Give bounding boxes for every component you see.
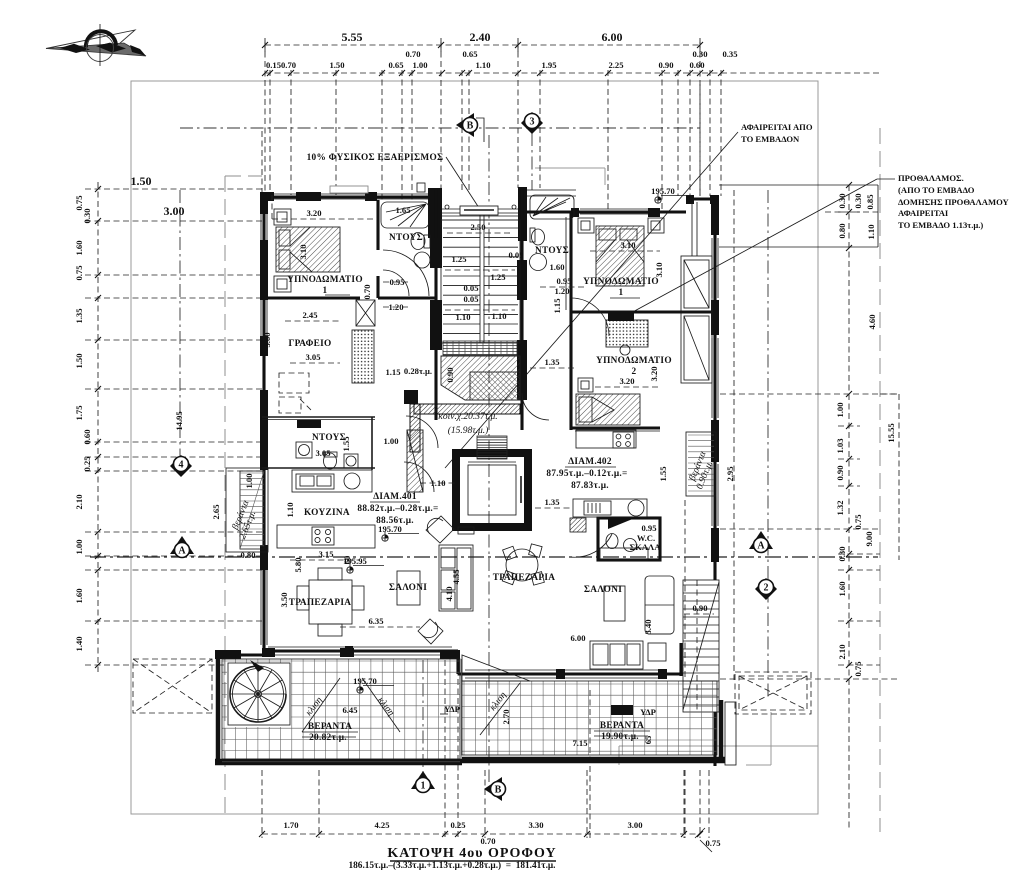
svg-text:ΥΔΡ: ΥΔΡ [640,707,656,717]
svg-text:ΣΑΛΟΝΙ: ΣΑΛΟΝΙ [389,583,427,593]
svg-text:0.05: 0.05 [508,250,523,260]
svg-text:3.05: 3.05 [305,352,320,362]
svg-text:0.90: 0.90 [692,603,707,613]
svg-text:ΤΡΑΠΕΖΑΡΙΑ: ΤΡΑΠΕΖΑΡΙΑ [493,573,556,583]
svg-text:4.60: 4.60 [867,314,877,329]
svg-text:ΣΑΛΟΝΙ: ΣΑΛΟΝΙ [584,585,622,595]
svg-text:1.35: 1.35 [74,308,84,323]
svg-text:3.50: 3.50 [279,592,289,607]
svg-text:1.25: 1.25 [451,254,466,264]
svg-text:6.35: 6.35 [368,616,383,626]
svg-text:1.60: 1.60 [549,262,564,272]
svg-text:ΔΙΑΜ.401: ΔΙΑΜ.401 [373,492,417,502]
svg-text:1.55: 1.55 [658,466,668,481]
svg-text:3.20: 3.20 [306,208,321,218]
svg-text:3.30: 3.30 [528,820,543,830]
svg-text:ΒΕΡΑΝΤΑ: ΒΕΡΑΝΤΑ [308,722,352,732]
svg-text:1.35: 1.35 [544,497,559,507]
svg-text:0.05: 0.05 [463,283,478,293]
svg-text:ΤΟ ΕΜΒΑΔΟ 1.13τ.μ.): ΤΟ ΕΜΒΑΔΟ 1.13τ.μ.) [898,220,983,230]
svg-text:ΝΤΟΥΣ: ΝΤΟΥΣ [389,233,423,243]
svg-text:19.90τ.μ.: 19.90τ.μ. [601,732,639,742]
svg-text:3.60: 3.60 [262,332,272,347]
svg-text:ΤΟ ΕΜΒΑΔΟΝ: ΤΟ ΕΜΒΑΔΟΝ [741,134,800,144]
svg-text:15.55: 15.55 [886,423,896,442]
svg-text:(15.98τ.μ.): (15.98τ.μ.) [448,425,489,436]
svg-text:1.10: 1.10 [455,312,470,322]
svg-text:0.90: 0.90 [445,367,455,382]
svg-text:0.75: 0.75 [853,661,863,676]
svg-text:0.75: 0.75 [74,265,84,280]
svg-text:6.00: 6.00 [602,30,623,44]
svg-text:0.75: 0.75 [74,195,84,210]
svg-text:ΥΠΝΟΔΩΜΑΤΙΟ: ΥΠΝΟΔΩΜΑΤΙΟ [287,275,363,285]
svg-text:2.40: 2.40 [470,30,491,44]
svg-text:A: A [178,546,186,557]
svg-text:195.70: 195.70 [353,676,377,686]
svg-text:1.25: 1.25 [490,272,505,282]
svg-text:1.00: 1.00 [74,539,84,554]
svg-text:1.10: 1.10 [475,60,490,70]
svg-text:0.75: 0.75 [705,838,720,848]
svg-text:0.65: 0.65 [462,49,477,59]
svg-text:6.45: 6.45 [342,705,357,715]
svg-text:0.70: 0.70 [362,284,372,299]
svg-text:4.10: 4.10 [444,586,454,601]
svg-text:ΒΕΡΑΝΤΑ: ΒΕΡΑΝΤΑ [600,721,644,731]
svg-text:20.82τ.μ.: 20.82τ.μ. [309,733,347,743]
svg-text:87.95τ.μ.–0.12τ.μ.=: 87.95τ.μ.–0.12τ.μ.= [546,469,627,479]
svg-text:ΣΚΑΛΑ: ΣΚΑΛΑ [630,542,662,552]
svg-text:0.65: 0.65 [388,60,403,70]
svg-text:0.25: 0.25 [82,456,92,471]
svg-text:1.00: 1.00 [383,436,398,446]
svg-text:1.40: 1.40 [74,636,84,651]
svg-text:2.65: 2.65 [211,504,221,519]
svg-text:4: 4 [179,460,184,471]
svg-text:0.30: 0.30 [853,193,863,208]
svg-text:4.25: 4.25 [374,820,389,830]
svg-text:7.15: 7.15 [572,738,587,748]
svg-text:1.10: 1.10 [491,311,506,321]
svg-text:2.95: 2.95 [725,466,735,481]
svg-text:1.03: 1.03 [835,438,845,453]
svg-text:9.00: 9.00 [864,531,874,546]
svg-text:ΓΡΑΦΕΙΟ: ΓΡΑΦΕΙΟ [288,339,331,349]
svg-text:3.15: 3.15 [318,549,333,559]
svg-text:2.10: 2.10 [837,644,847,659]
svg-text:3.00: 3.00 [164,204,185,218]
svg-text:ΔΟΜΗΣΗΣ ΠΡΟΘΑΛΑΜΟΥ: ΔΟΜΗΣΗΣ ΠΡΟΘΑΛΑΜΟΥ [898,197,1010,207]
svg-text:0.60: 0.60 [689,60,704,70]
svg-text:10% ΦΥΣΙΚΟΣ ΕΞΑΕΡΙΣΜΟΣ: 10% ΦΥΣΙΚΟΣ ΕΞΑΕΡΙΣΜΟΣ [307,153,444,163]
svg-text:1.60: 1.60 [837,581,847,596]
svg-text:(ΑΠΟ ΤΟ ΕΜΒΑΔΟ: (ΑΠΟ ΤΟ ΕΜΒΑΔΟ [898,185,975,195]
svg-text:1.15: 1.15 [552,298,562,313]
svg-text:6.00: 6.00 [570,633,585,643]
svg-text:186.15τ.μ.–(3.33τ.μ.+1.13τ.μ.+: 186.15τ.μ.–(3.33τ.μ.+1.13τ.μ.+0.28τ.μ.) … [349,860,556,871]
svg-text:0.35: 0.35 [722,49,737,59]
svg-text:1.95: 1.95 [541,60,556,70]
svg-text:1.75: 1.75 [74,405,84,420]
svg-text:1.32: 1.32 [835,500,845,515]
svg-text:2: 2 [764,583,769,594]
svg-text:1.00: 1.00 [412,60,427,70]
svg-text:1.10: 1.10 [285,502,295,517]
svg-text:3.10: 3.10 [654,262,664,277]
svg-text:0.95: 0.95 [641,523,656,533]
svg-text:1.55: 1.55 [341,436,351,451]
svg-text:2.10: 2.10 [74,494,84,509]
svg-text:0.75: 0.75 [853,514,863,529]
svg-text:1: 1 [323,286,328,296]
svg-text:B: B [467,121,474,132]
svg-text:4.55: 4.55 [451,569,461,584]
svg-text:A: A [757,541,765,552]
svg-text:195.70: 195.70 [378,524,402,534]
svg-text:1.50: 1.50 [74,353,84,368]
svg-text:1: 1 [421,781,426,792]
svg-text:1.60: 1.60 [74,588,84,603]
svg-text:1: 1 [619,288,624,298]
svg-text:ΤΡΑΠΕΖΑΡΙΑ: ΤΡΑΠΕΖΑΡΙΑ [289,598,352,608]
svg-text:0.70: 0.70 [405,49,420,59]
svg-text:14.95: 14.95 [174,411,184,430]
svg-text:1.35: 1.35 [544,357,559,367]
svg-text:0.90: 0.90 [835,465,845,480]
svg-text:1.00: 1.00 [244,473,254,488]
svg-text:0.30: 0.30 [837,546,847,561]
svg-text:2.70: 2.70 [501,709,511,724]
svg-text:1.70: 1.70 [283,820,298,830]
svg-text:3.20: 3.20 [619,376,634,386]
svg-text:ΑΦΑΙΡΕΙΤΑΙ ΑΠΟ: ΑΦΑΙΡΕΙΤΑΙ ΑΠΟ [741,122,813,132]
svg-text:ΚΟΥΖΙΝΑ: ΚΟΥΖΙΝΑ [304,508,350,518]
svg-text:1.20: 1.20 [554,286,569,296]
svg-text:0.30: 0.30 [82,208,92,223]
svg-text:1.50: 1.50 [131,174,152,188]
svg-text:195.70: 195.70 [651,186,675,196]
svg-text:3.20: 3.20 [649,366,659,381]
svg-text:ΑΦΑΙΡΕΙΤΑΙ: ΑΦΑΙΡΕΙΤΑΙ [898,208,949,218]
svg-text:5.55: 5.55 [342,30,363,44]
svg-text:0.80: 0.80 [837,223,847,238]
svg-text:2.25: 2.25 [608,60,623,70]
svg-text:0.150.70: 0.150.70 [266,60,296,70]
svg-text:ΥΔΡ: ΥΔΡ [444,704,460,714]
svg-text:0.60: 0.60 [82,429,92,444]
svg-text:1.15: 1.15 [385,367,400,377]
svg-text:B: B [495,785,502,796]
svg-text:3: 3 [530,117,535,128]
svg-text:87.83τ.μ.: 87.83τ.μ. [571,481,609,491]
svg-text:1.00: 1.00 [835,402,845,417]
svg-text:0.05: 0.05 [463,294,478,304]
svg-text:3.00: 3.00 [627,820,642,830]
svg-text:κοιν.χ.20.37τ.μ.: κοιν.χ.20.37τ.μ. [438,412,497,422]
svg-text:0.28τ.μ.: 0.28τ.μ. [404,366,432,376]
svg-text:0.95: 0.95 [556,276,571,286]
svg-text:ΠΡΟΘΑΛΑΜΟΣ.: ΠΡΟΘΑΛΑΜΟΣ. [898,173,964,183]
svg-text:0.85: 0.85 [865,194,875,209]
svg-text:88.82τ.μ.–0.28τ.μ.=: 88.82τ.μ.–0.28τ.μ.= [357,504,438,514]
svg-text:ΔΙΑΜ.402: ΔΙΑΜ.402 [568,457,612,467]
svg-text:ΝΤΟΥΣ: ΝΤΟΥΣ [535,246,569,256]
svg-text:ΥΠΝΟΔΩΜΑΤΙΟ: ΥΠΝΟΔΩΜΑΤΙΟ [596,356,672,366]
svg-text:0.90: 0.90 [658,60,673,70]
svg-text:1.50: 1.50 [329,60,344,70]
svg-text:65: 65 [643,736,653,745]
svg-text:2.45: 2.45 [302,310,317,320]
svg-text:0.70: 0.70 [480,836,495,846]
svg-text:1.60: 1.60 [74,240,84,255]
svg-text:3.40: 3.40 [643,619,653,634]
svg-text:2.50: 2.50 [470,222,485,232]
svg-text:1.10: 1.10 [866,224,876,239]
svg-text:0.80: 0.80 [240,550,255,560]
svg-text:ΚΑΤΟΨΗ 4ου ΟΡΟΦΟΥ: ΚΑΤΟΨΗ 4ου ΟΡΟΦΟΥ [387,846,556,861]
